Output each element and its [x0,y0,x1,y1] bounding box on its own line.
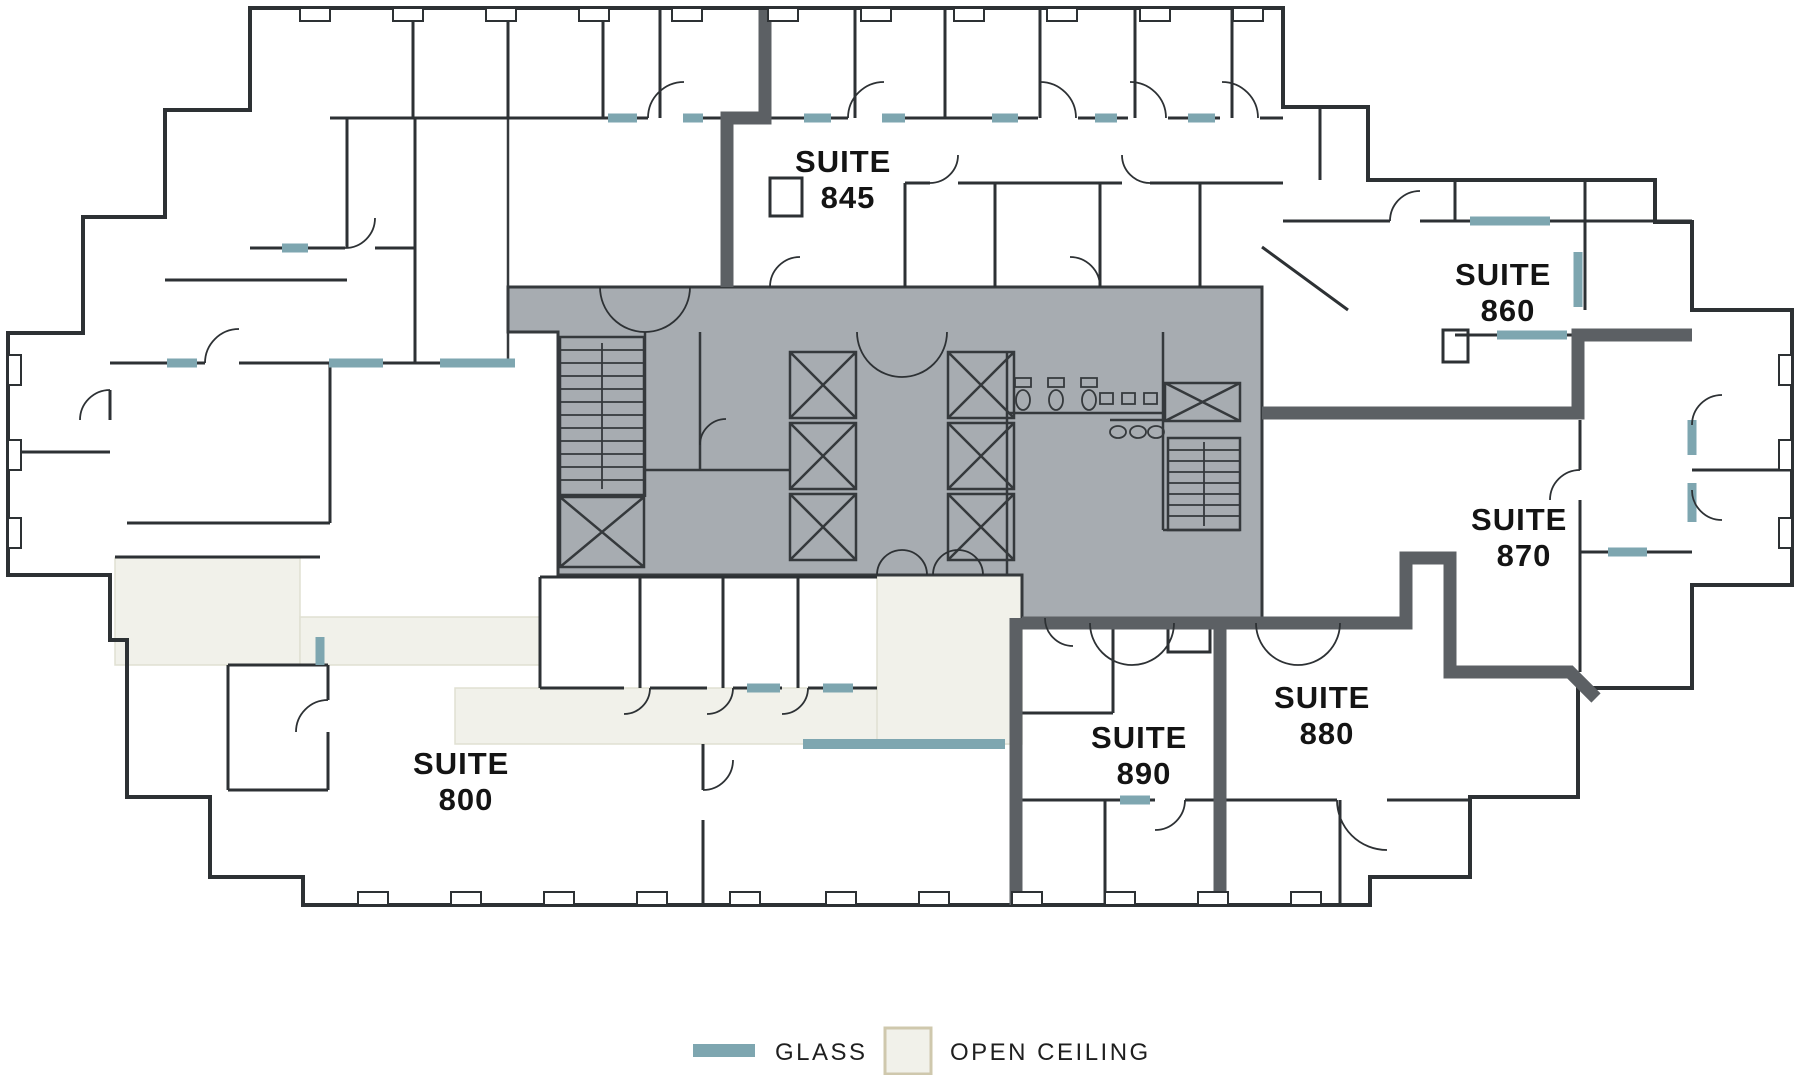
pilaster [8,440,21,470]
legend-open-ceiling-label: OPEN CEILING [950,1039,1151,1066]
suite-860-number: 860 [1481,293,1536,328]
suite-800-label: SUITE 800 [413,746,519,817]
suite-860-label: SUITE 860 [1455,257,1561,328]
pilaster [919,892,949,905]
pilaster [358,892,388,905]
pilaster [954,8,984,21]
legend-glass-label: GLASS [775,1039,868,1066]
pilaster [393,8,423,21]
legend: GLASS OPEN CEILING [693,1028,1151,1074]
floor-plan-drawing: SUITE 800 SUITE 845 SUITE 860 SUITE 870 … [0,0,1800,1075]
pilaster [730,892,760,905]
pilaster [300,8,330,21]
pilaster [486,8,516,21]
pilaster [672,8,702,21]
pilaster [1233,8,1263,21]
pilaster [1105,892,1135,905]
pilaster [451,892,481,905]
suite-890-label: SUITE 890 [1091,720,1197,791]
suite-870-number: 870 [1497,538,1552,573]
pilaster [861,8,891,21]
suite-845-label: SUITE 845 [795,144,901,215]
pilaster [1779,440,1792,470]
pilaster [1047,8,1077,21]
suite-800-word: SUITE [413,746,509,781]
open-ceiling-zone [300,617,540,665]
suite-870-word: SUITE [1471,502,1567,537]
suite-880-number: 880 [1300,716,1355,751]
pilaster [1140,8,1170,21]
pilaster [768,8,798,21]
open-ceiling-zone [115,558,300,665]
legend-glass-swatch [693,1044,755,1057]
suite-880-label: SUITE 880 [1274,680,1380,751]
suite-800-number: 800 [439,782,494,817]
pilaster [637,892,667,905]
pilaster [544,892,574,905]
pilaster [1779,518,1792,548]
suite-845-word: SUITE [795,144,891,179]
pilaster [1291,892,1321,905]
legend-open-ceiling-swatch [885,1028,931,1074]
pilaster [1012,892,1042,905]
pilaster [8,355,21,385]
suite-880-word: SUITE [1274,680,1370,715]
suite-845-number: 845 [821,180,876,215]
open-ceiling-areas [115,558,1022,744]
pilaster [8,518,21,548]
pilaster [1779,355,1792,385]
pilaster [1198,892,1228,905]
floor-plan-page: SUITE 800 SUITE 845 SUITE 860 SUITE 870 … [0,0,1800,1075]
suite-890-word: SUITE [1091,720,1187,755]
suite-860-word: SUITE [1455,257,1551,292]
suite-890-number: 890 [1117,756,1172,791]
pilaster [579,8,609,21]
open-ceiling-zone [877,575,1022,744]
building-core [508,118,1262,618]
pilaster [826,892,856,905]
suite-870-label: SUITE 870 [1471,502,1577,573]
